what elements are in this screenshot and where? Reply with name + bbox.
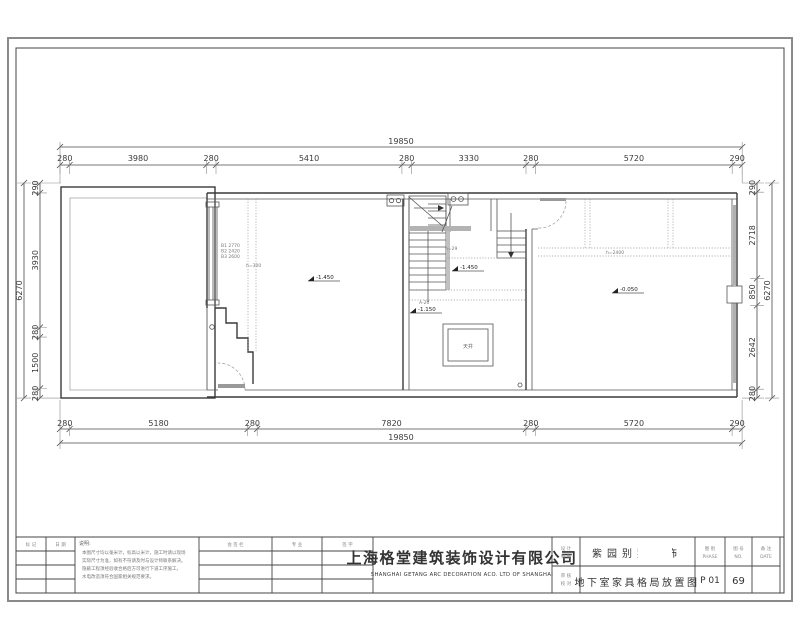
dim-top-seg: 280 [399,154,414,163]
notes-line: 水电改造须符合国家相关规范要求。 [82,573,154,580]
dimension-right: 290 2718 850 2642 280 6270 [742,180,779,401]
dim-top-seg: 5410 [299,154,319,163]
company-name-en: SHANGHAI GETANG ARC DECORATION ACO. LTD … [371,572,553,578]
stair-note: A-20 [419,300,429,306]
svg-text:-1.450: -1.450 [460,265,478,271]
svg-text:-0.050: -0.050 [620,287,638,293]
dim-bottom-seg: 290 [729,419,744,428]
date-col-label: 备 注 [761,545,772,552]
staircase-second-flight [497,213,526,258]
wall-note: B3 2600 [221,254,240,260]
dim-bottom-seg: 280 [245,419,260,428]
beam-note: h=2400 [606,250,624,256]
sheet-number: P 01 [700,576,720,586]
elevation-marker: -0.050 [612,287,644,293]
dim-top-seg: 3980 [128,154,148,163]
page-number: 69 [732,576,745,587]
door-leaf [540,198,566,201]
dimension-top: 19850 280 3980 280 5410 280 3330 280 572… [57,137,745,183]
door-leaf [218,384,245,388]
left-yard [61,187,215,398]
mid-col-label: 签 字 [342,541,353,548]
right-room-door [538,198,566,228]
drawing-sheet: 19850 280 3980 280 5410 280 3330 280 572… [0,0,800,640]
dim-top-seg: 280 [523,154,538,163]
left-window [206,202,219,305]
project-title-cell: 紫园别墅装饰 地下室家具格局放置图 [575,546,700,589]
stair-count-note: h=29 [445,246,457,252]
role-label: 制 图 [561,553,572,560]
rev-col-label: 标 记 [26,541,37,548]
wall-note: B2 2420 [221,249,240,255]
elevation-markers: -1.450 -1.450 -1.150 -0.050 [308,265,644,313]
page-col-label: NO. [734,554,742,560]
date-col-label: DATE [760,554,772,560]
role-label: 校 对 [561,580,572,587]
sheet-frame [8,38,792,601]
level-note: h=300 [246,263,261,269]
dim-right-seg: 280 [748,386,757,401]
title-block: 标 记 日 期 说明: 本图尺寸均以毫米计，标高以米计，施工时请以现场 实际尺寸… [16,537,784,593]
window-box [727,286,742,303]
role-label: 设 计 [561,545,572,552]
notes-cell: 说明: 本图尺寸均以毫米计，标高以米计，施工时请以现场 实际尺寸为准，如有不符请… [79,540,186,580]
dim-top-seg: 280 [204,154,219,163]
notes-line: 隐蔽工程须经验收合格后方可进行下道工序施工， [82,565,181,572]
stair-cut-band [446,231,450,290]
sign-table-header: 会 签 栏 [227,541,244,548]
light-well: 天井 [443,324,522,387]
stair-up-arrow [438,205,444,211]
notes-title: 说明: [79,540,91,547]
dim-right-seg: 2642 [748,337,757,357]
elevation-marker: -1.150 [410,307,442,313]
svg-text:-1.450: -1.450 [316,275,334,281]
dimension-bottom: 280 5180 280 7820 280 5720 290 19850 [57,400,745,449]
dim-left-seg: 3930 [31,250,40,270]
company-name-cn: 上海格堂建筑装饰设计有限公司 [346,549,577,567]
dim-bottom-total: 19850 [388,433,413,442]
company-cell: 上海格堂建筑装饰设计有限公司 SHANGHAI GETANG ARC DECOR… [346,549,577,578]
steps-and-door [207,308,253,390]
staircase: A-20 h=29 [409,196,471,306]
dim-top-seg: 3330 [459,154,479,163]
floor-plan: A-20 h=29 [61,187,742,398]
rev-col-label: 日 期 [55,542,66,548]
floor-drain-symbol [518,383,522,387]
dim-left-seg: 1500 [31,353,40,373]
notes-line: 本图尺寸均以毫米计，标高以米计，施工时请以现场 [82,549,186,556]
dim-bottom-seg: 7820 [381,419,401,428]
mid-col-label: 专 业 [292,541,303,548]
light-well-label: 天井 [463,343,473,350]
dim-right-seg: 850 [748,284,757,299]
redaction-box [638,546,672,560]
cad-canvas: 19850 280 3980 280 5410 280 3330 280 572… [0,0,800,640]
page-col-label: 图 号 [733,546,744,552]
dim-bottom-seg: 280 [523,419,538,428]
stair-down-arrow [508,252,514,258]
elevation-marker: -1.450 [308,275,340,281]
right-window [727,205,742,383]
dim-left-seg: 290 [31,180,40,195]
dim-left-seg: 280 [31,325,40,340]
elevation-marker: -1.450 [452,265,484,271]
dim-top-seg: 280 [57,154,72,163]
dim-top-total: 19850 [388,137,413,146]
door-swing-arc [538,201,566,228]
sheet-col-label: 图 别 [705,545,716,552]
dim-left-total: 6270 [15,280,24,300]
dim-right-seg: 290 [748,180,757,195]
wall-note: B1 2770 [221,243,240,249]
dim-bottom-seg: 280 [57,419,72,428]
dim-right-seg: 2718 [748,225,757,245]
role-label: 审 核 [561,572,572,579]
svg-text:-1.150: -1.150 [418,307,436,313]
dim-right-total: 6270 [763,280,772,300]
dim-left-seg: 280 [31,386,40,401]
stair-landing [409,226,471,231]
door-knob-symbol [210,325,215,330]
dim-top-seg: 5720 [624,154,644,163]
dim-bottom-seg: 5720 [624,419,644,428]
dim-top-seg: 290 [730,154,745,163]
drawing-title: 地下室家具格局放置图 [575,576,700,589]
dim-bottom-seg: 5180 [148,419,168,428]
sheet-col-label: PHASE [703,554,718,560]
notes-line: 实际尺寸为准，如有不符请及时与设计师联系解决。 [82,557,186,564]
dimension-left: 290 3930 280 1500 280 6270 [15,180,61,401]
